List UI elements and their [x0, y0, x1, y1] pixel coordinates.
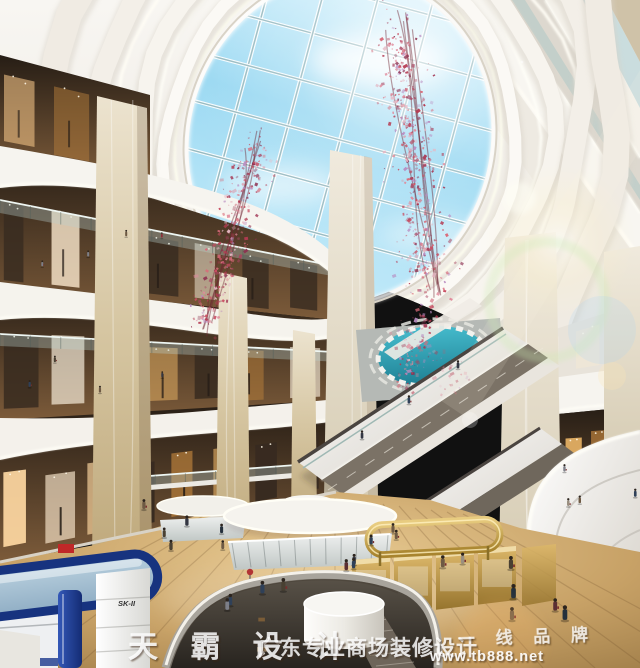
person-head	[352, 558, 355, 561]
person-head	[370, 534, 373, 537]
person-head	[395, 530, 398, 533]
person-body	[408, 398, 411, 404]
person-body	[99, 388, 101, 393]
blossom-petal	[403, 336, 404, 337]
shop-spotlight	[24, 83, 26, 85]
shop-spotlight	[261, 446, 263, 448]
blossom-petal	[395, 60, 397, 63]
blossom-petal	[404, 368, 407, 370]
blossom-petal	[415, 199, 417, 201]
shopping-bag	[146, 506, 147, 508]
blossom-petal	[214, 266, 215, 267]
shopping-bag	[31, 385, 32, 386]
person-head	[226, 598, 229, 601]
blossom-petal	[421, 322, 425, 326]
person-head	[461, 553, 464, 556]
blossom-petal	[406, 370, 407, 371]
person-head	[169, 540, 172, 543]
blossom-petal	[423, 316, 425, 318]
blossom-petal	[414, 79, 417, 82]
blossom-petal	[415, 242, 416, 243]
blossom-petal	[432, 167, 434, 170]
person-shadow	[578, 503, 582, 505]
person-body	[634, 491, 637, 497]
person-body	[125, 232, 127, 237]
person-head	[563, 605, 567, 609]
blossom-petal	[411, 347, 413, 350]
blossom-petal	[221, 286, 222, 287]
person-shadow	[280, 590, 287, 593]
person-body	[352, 561, 355, 569]
person-body	[54, 357, 56, 362]
person-body	[511, 588, 516, 598]
person-shadow	[552, 610, 559, 613]
shopping-bag	[464, 560, 465, 562]
blossom-petal	[229, 257, 232, 260]
case-glass	[482, 559, 512, 587]
blossom-petal	[405, 105, 408, 108]
person-shadow	[220, 549, 225, 551]
blossom-petal	[408, 342, 410, 343]
person-head	[345, 559, 348, 562]
person-shadow	[566, 506, 571, 508]
blossom-petal	[203, 291, 206, 293]
blossom-petal	[412, 213, 414, 215]
person-shadow	[407, 404, 412, 406]
shop-spotlight	[601, 431, 603, 433]
person-shadow	[360, 439, 365, 441]
blossom-petal	[234, 210, 235, 211]
person-body	[567, 500, 570, 506]
person-head	[161, 371, 163, 373]
blossom-petal	[236, 209, 238, 211]
blossom-petal	[414, 223, 415, 224]
person-body	[185, 518, 188, 525]
person-body	[41, 262, 43, 266]
blossom-petal	[408, 116, 409, 117]
blossom-petal	[383, 151, 386, 154]
blossom-petal	[202, 318, 205, 320]
shopping-bag	[410, 401, 411, 403]
flare-hotspot	[504, 182, 536, 214]
blossom-petal	[389, 332, 392, 335]
blossom-petal	[387, 38, 390, 41]
blossom-petal	[222, 243, 223, 244]
blossom-petal	[404, 70, 405, 71]
blossom-petal	[220, 279, 222, 282]
blossom-petal	[411, 217, 413, 219]
person-body	[344, 562, 348, 570]
blossom-petal	[392, 77, 394, 78]
person-head	[634, 489, 636, 491]
person-shadow	[86, 257, 90, 258]
person-body	[220, 526, 223, 533]
blossom-petal	[418, 346, 421, 349]
round-drum-top	[304, 592, 384, 616]
person-shadow	[168, 550, 174, 552]
blossom-petal	[401, 64, 402, 65]
blossom-petal	[407, 109, 408, 111]
shop-window	[3, 470, 26, 548]
blossom-petal	[226, 300, 228, 303]
person-body	[29, 382, 31, 387]
person-body	[87, 252, 89, 256]
blossom-petal	[396, 381, 398, 383]
blossom-petal	[237, 184, 239, 186]
blossom-petal	[209, 261, 212, 264]
blossom-petal	[247, 209, 249, 212]
blossom-petal	[423, 367, 424, 368]
shopping-bag	[398, 536, 399, 538]
shop-spotlight	[177, 455, 179, 457]
person-shadow	[53, 362, 57, 363]
mannequin-silhouette	[18, 110, 20, 137]
blossom-petal	[230, 253, 233, 256]
blossom-petal	[260, 164, 262, 166]
person-shadow	[562, 472, 566, 474]
person-shadow	[28, 387, 32, 388]
blossom-petal	[402, 239, 404, 241]
blossom-petal	[397, 33, 399, 35]
blossom-petal	[392, 64, 394, 67]
shopping-bag	[373, 541, 374, 543]
blossom-petal	[197, 316, 200, 320]
blossom-petal	[409, 283, 410, 284]
person-shadow	[633, 497, 638, 499]
blossom-petal	[408, 85, 409, 86]
gold-case	[522, 544, 556, 606]
blossom-petal	[232, 252, 233, 253]
blossom-petal	[412, 361, 414, 364]
blossom-petal	[406, 17, 408, 20]
shop-spotlight	[18, 471, 20, 473]
person-head	[142, 499, 145, 502]
blossom-petal	[417, 104, 421, 107]
blossom-petal	[416, 373, 419, 377]
person-head	[29, 380, 31, 382]
blossom-petal	[394, 346, 398, 350]
shopping-bag	[43, 264, 44, 265]
person-body	[225, 601, 229, 609]
blossom-petal	[419, 306, 421, 308]
person-head	[579, 496, 581, 498]
person-body	[553, 602, 557, 611]
shop-spotlight	[576, 439, 578, 441]
blossom-petal	[436, 260, 439, 263]
person-head	[353, 554, 356, 557]
mannequin-silhouette	[68, 121, 70, 148]
shop-spotlight	[270, 443, 272, 445]
shop-spotlight	[595, 432, 597, 434]
blossom-petal	[262, 166, 265, 168]
blossom-petal	[442, 153, 444, 156]
column-left-3	[291, 330, 317, 522]
blossom-petal	[430, 166, 431, 167]
person-head	[408, 395, 410, 397]
person-body	[221, 543, 224, 549]
case-glass	[440, 563, 470, 591]
blossom-petal	[226, 236, 230, 239]
flare-dot	[462, 412, 478, 428]
person-head	[282, 578, 286, 582]
person-body	[441, 559, 445, 568]
mannequin-silhouette	[60, 507, 62, 535]
mannequin-silhouette	[162, 374, 164, 398]
blossom-petal	[250, 132, 251, 133]
mannequin-silhouette	[208, 374, 210, 397]
blossom-petal	[415, 308, 420, 312]
blossom-petal	[413, 242, 415, 244]
mannequin-silhouette	[157, 264, 159, 288]
blossom-petal	[226, 264, 230, 267]
left-balustrade-piece	[0, 630, 40, 668]
blossom-petal	[266, 159, 268, 161]
person-shadow	[459, 563, 465, 565]
blossom-petal	[402, 213, 404, 216]
blossom-petal	[428, 121, 431, 123]
flare-circle-warm	[598, 362, 626, 390]
blossom-petal	[399, 357, 401, 360]
person-head	[221, 540, 224, 543]
person-shadow	[351, 568, 357, 570]
red-stool	[247, 569, 253, 575]
blossom-petal	[430, 246, 433, 249]
blossom-petal	[246, 197, 248, 199]
backwall-sign	[58, 544, 74, 553]
person-head	[392, 523, 395, 526]
shop-spotlight	[12, 76, 14, 78]
mannequin-silhouette	[62, 249, 64, 276]
blossom-petal	[244, 206, 246, 208]
blossom-petal	[419, 289, 422, 292]
blossom-petal	[220, 310, 222, 312]
blossom-petal	[406, 109, 407, 110]
blossom-petal	[399, 36, 401, 38]
person-body	[563, 609, 568, 620]
person-body	[369, 537, 372, 544]
blossom-petal	[424, 207, 426, 209]
shopping-bag	[56, 360, 57, 361]
blossom-petal	[212, 308, 215, 312]
person-body	[161, 373, 163, 377]
shopping-bag	[285, 586, 287, 589]
blossom-petal	[430, 311, 432, 314]
person-shadow	[161, 537, 166, 539]
blossom-petal	[397, 241, 398, 242]
blossom-petal	[244, 245, 246, 248]
blossom-petal	[433, 268, 435, 270]
shop-spotlight	[185, 452, 187, 454]
shop-spotlight	[65, 472, 67, 474]
blossom-petal	[422, 262, 425, 264]
blossom-petal	[427, 199, 429, 202]
blossom-petal	[443, 163, 445, 165]
blossom-petal	[411, 372, 415, 375]
person-body	[509, 559, 513, 568]
blossom-petal	[422, 147, 424, 149]
person-head	[441, 555, 444, 558]
blossom-petal	[396, 105, 399, 109]
blossom-petal	[427, 289, 428, 291]
lower-level-light	[258, 618, 265, 622]
blossom-petal	[402, 49, 406, 53]
person-body	[161, 234, 163, 238]
blossom-petal	[224, 221, 227, 224]
person-body	[457, 362, 460, 368]
blossom-petal	[404, 80, 405, 81]
person-shadow	[259, 593, 266, 596]
person-body	[281, 581, 285, 590]
blossom-petal	[416, 345, 418, 348]
blossom-petal	[408, 55, 409, 56]
blossom-petal	[428, 352, 431, 354]
person-body	[163, 530, 166, 537]
person-shadow	[141, 509, 147, 511]
blossom-petal	[390, 93, 393, 95]
blossom-petal	[227, 215, 230, 218]
blossom-petal	[230, 201, 232, 203]
person-shadow	[161, 378, 164, 379]
blossom-petal	[261, 127, 262, 129]
blossom-petal	[429, 249, 431, 251]
shopping-bag	[513, 564, 515, 567]
blossom-petal	[419, 35, 421, 37]
person-shadow	[224, 610, 231, 612]
mannequin-silhouette	[251, 278, 253, 299]
blossom-petal	[422, 276, 424, 278]
person-body	[461, 556, 465, 564]
mall-atrium-scene: SK-II 天 霸 设 计 广东专业商场装修设计 一 线 品 牌 www.tb8…	[0, 0, 640, 668]
person-head	[163, 528, 166, 531]
person-body	[563, 466, 565, 471]
person-head	[553, 598, 557, 602]
shop-spotlight	[570, 440, 572, 442]
shopping-bag	[566, 469, 567, 471]
blossom-petal	[218, 286, 220, 288]
blossom-petal	[249, 192, 250, 194]
shopping-bag	[570, 503, 571, 505]
blossom-petal	[422, 313, 425, 316]
blossom-petal	[423, 164, 426, 167]
blossom-petal	[250, 188, 253, 190]
person-head	[99, 386, 101, 388]
blossom-petal	[408, 135, 410, 137]
blossom-petal	[443, 350, 446, 354]
blossom-petal	[412, 317, 413, 318]
mannequin-silhouette	[248, 373, 250, 394]
person-body	[579, 498, 581, 504]
person-head	[161, 232, 163, 234]
person-body	[361, 433, 364, 439]
person-shadow	[439, 567, 446, 569]
blossom-petal	[382, 55, 384, 57]
blossom-petal	[390, 18, 392, 20]
blossom-petal	[404, 154, 405, 155]
blossom-petal	[238, 247, 239, 248]
person-body	[142, 502, 145, 509]
shop-spotlight	[64, 87, 66, 89]
person-head	[361, 430, 363, 432]
blossom-petal	[190, 304, 192, 307]
blossom-petal	[414, 269, 418, 272]
blossom-petal	[412, 221, 414, 223]
blossom-petal	[391, 97, 395, 100]
blossom-petal	[238, 190, 241, 193]
flare-circle-blue	[568, 296, 636, 364]
shop-spotlight	[78, 96, 80, 98]
person-shadow	[160, 238, 163, 239]
blossom-petal	[450, 378, 451, 379]
blossom-petal	[196, 320, 198, 321]
person-shadow	[98, 393, 102, 394]
person-body	[391, 526, 394, 533]
blossom-petal	[430, 128, 433, 131]
blossom-petal	[442, 229, 444, 230]
blossom-petal	[444, 245, 445, 246]
person-shadow	[394, 539, 399, 541]
person-head	[563, 464, 565, 466]
blossom-petal	[392, 48, 393, 49]
person-shadow	[368, 544, 374, 546]
blossom-petal	[431, 262, 433, 265]
blossom-petal	[240, 204, 241, 205]
blossom-petal	[421, 101, 423, 102]
blossom-petal	[400, 320, 401, 321]
blossom-petal	[433, 149, 436, 152]
blossom-petal	[198, 322, 201, 324]
blossom-petal	[253, 154, 254, 156]
blossom-petal	[394, 36, 395, 37]
blossom-petal	[263, 155, 266, 158]
blossom-petal	[271, 181, 273, 182]
blossom-petal	[219, 178, 223, 181]
shop-spotlight	[9, 473, 11, 475]
blossom-petal	[231, 166, 234, 169]
person-head	[125, 230, 127, 232]
person-shadow	[124, 237, 128, 238]
watermark-url: www.tb888.net	[429, 649, 544, 665]
sk2-logo: SK-II	[118, 599, 136, 608]
blossom-petal	[412, 271, 414, 273]
blossom-petal	[412, 64, 416, 68]
person-head	[87, 250, 89, 252]
person-head	[457, 360, 459, 362]
person-head	[185, 515, 188, 518]
person-body	[395, 532, 398, 539]
person-head	[220, 524, 223, 527]
blossom-petal	[238, 203, 241, 206]
person-head	[41, 260, 43, 262]
shop-spotlight	[53, 476, 55, 478]
person-head	[511, 584, 515, 588]
shopping-bag	[557, 606, 559, 609]
shop-window	[54, 86, 89, 161]
mall-rendering: SK-II 天 霸 设 计 广东专业商场装修设计 一 线 品 牌 www.tb8…	[0, 0, 640, 668]
person-shadow	[507, 569, 514, 572]
blossom-petal	[237, 194, 240, 196]
person-shadow	[219, 533, 225, 535]
person-head	[509, 556, 513, 560]
person-body	[169, 543, 172, 550]
person-shadow	[184, 526, 190, 528]
person-head	[54, 356, 56, 358]
person-head	[567, 498, 569, 500]
person-body	[260, 584, 264, 593]
person-head	[229, 594, 232, 597]
blossom-petal	[223, 286, 225, 288]
blossom-petal	[244, 237, 248, 241]
person-shadow	[343, 570, 349, 572]
